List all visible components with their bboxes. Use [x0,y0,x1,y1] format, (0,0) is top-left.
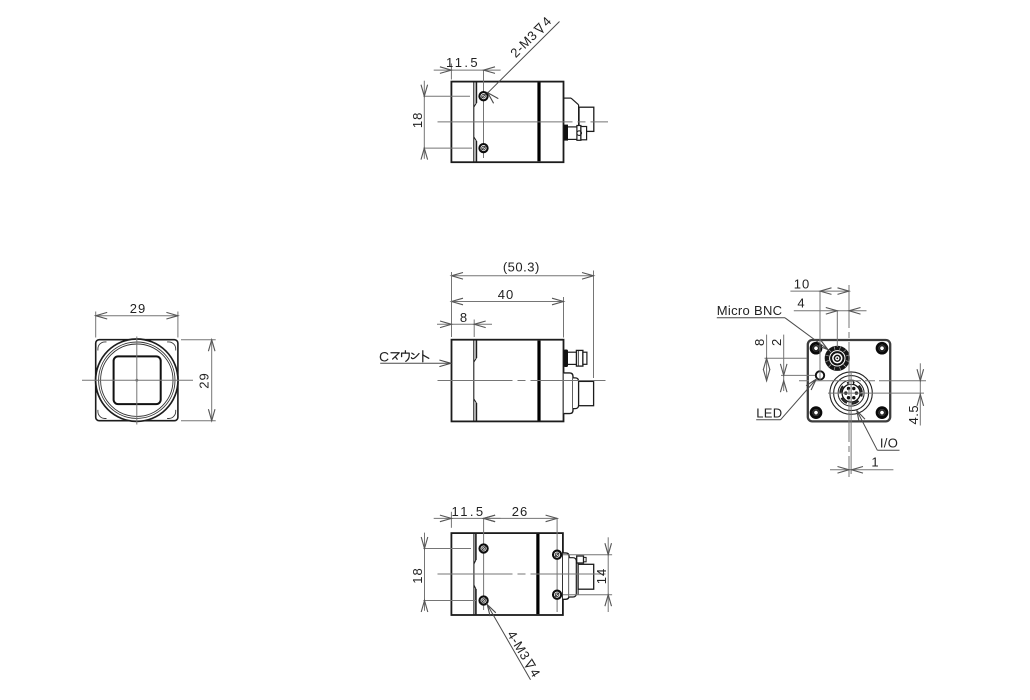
svg-text:18: 18 [410,567,425,583]
svg-text:4: 4 [797,295,804,310]
svg-text:2: 2 [769,339,784,346]
svg-text:10: 10 [794,276,810,291]
svg-text:29: 29 [197,372,212,388]
svg-text:11.5: 11.5 [452,504,486,519]
svg-text:29: 29 [130,301,146,316]
svg-text:11.5: 11.5 [446,55,480,70]
svg-text:LED: LED [756,405,782,420]
svg-text:40: 40 [498,287,514,302]
svg-text:18: 18 [410,112,425,128]
svg-text:I/O: I/O [880,435,898,450]
svg-text:14: 14 [594,568,609,584]
svg-text:C: C [379,349,389,365]
svg-text:26: 26 [512,504,528,519]
svg-text:8: 8 [460,310,467,325]
svg-text:(50.3): (50.3) [503,260,540,275]
svg-text:4.5: 4.5 [906,405,921,425]
svg-text:Micro BNC: Micro BNC [717,303,783,318]
svg-text:1: 1 [871,455,878,470]
svg-text:8: 8 [752,339,767,346]
